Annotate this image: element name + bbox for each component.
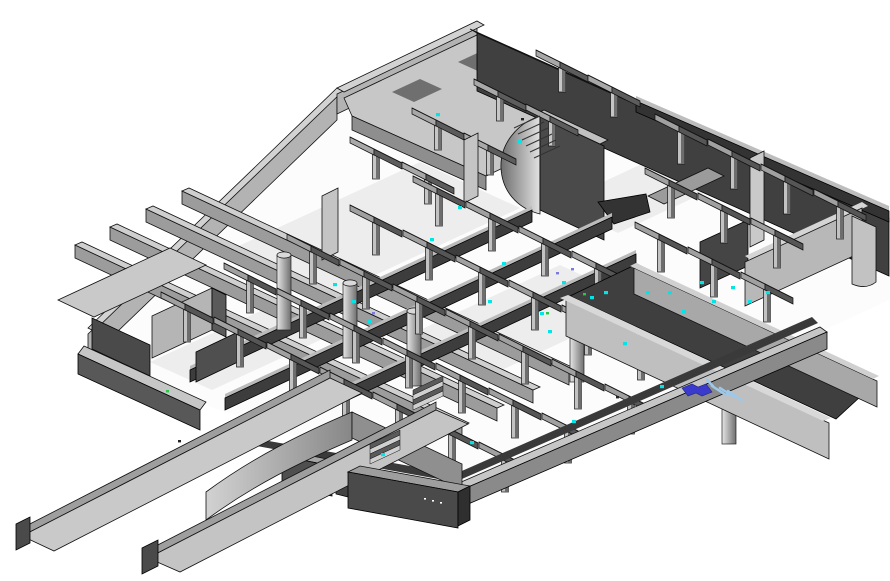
main-column-grid-col-1-6-shaft-shade — [671, 184, 675, 218]
cyan-markers-22 — [660, 385, 664, 388]
pit-weep-holes-2 — [440, 502, 442, 504]
main-column-grid-col-0-0-shaft-shade — [240, 333, 244, 367]
main-column-grid-col-3-5-shaft-shade — [714, 263, 718, 297]
main-column-grid-col-2-3-shaft-shade — [535, 296, 539, 330]
main-column-grid-col-2-1-shaft-shade — [409, 354, 413, 388]
main-column-grid-col-1-7-shaft-shade — [734, 155, 738, 189]
main-column-grid-col-3-6-shaft-shade — [777, 234, 781, 268]
main-column-grid-col-0-1-shaft-shade — [303, 304, 307, 338]
main-column-grid-col-1-2-shaft-shade — [419, 300, 423, 334]
cyan-markers-24 — [470, 441, 474, 444]
main-column-grid-col-0-4-shaft-shade — [492, 217, 496, 251]
cyan-markers-5 — [458, 206, 462, 209]
dark-specks-0 — [616, 396, 619, 398]
cyan-markers-2 — [368, 320, 372, 323]
left-column-row-col-0-0-shaft-shade — [187, 308, 191, 342]
cyan-markers-14 — [646, 291, 650, 294]
left-column-row-col-0-4-shaft-shade — [439, 192, 443, 226]
dark-specks-2 — [521, 118, 524, 120]
dark-specks-1 — [178, 440, 181, 442]
cyan-markers-23 — [572, 420, 576, 423]
left-column-row-col-0-3-shaft-shade — [376, 221, 380, 255]
cyan-markers-17 — [700, 281, 704, 284]
ramp-lane-2-tip-wall — [142, 540, 158, 574]
main-column-grid-col-4-2-shaft-shade — [578, 375, 582, 409]
main-column-grid-col-3-7-shaft-shade — [840, 205, 844, 239]
cyan-markers-11 — [590, 296, 594, 299]
cyan-markers-1 — [352, 300, 356, 303]
violet-markers-2 — [372, 312, 375, 314]
cyan-markers-4 — [430, 238, 434, 241]
cyan-markers-15 — [668, 291, 672, 294]
left-column-row-col-0-2-shaft-shade — [313, 250, 317, 284]
vertical-panel-2 — [464, 133, 478, 203]
pit-weep-holes-0 — [424, 498, 426, 500]
cyan-markers-16 — [682, 310, 686, 313]
cyan-markers-18 — [712, 300, 716, 303]
main-column-grid-col-1-1-shaft-shade — [356, 329, 360, 363]
cyan-markers-13 — [623, 342, 627, 345]
left-column-row-col-0-1-shaft-shade — [250, 279, 254, 313]
green-markers-0 — [166, 390, 169, 392]
cyan-markers-25 — [436, 113, 440, 116]
main-column-grid-col-0-2-shaft-shade — [366, 275, 370, 309]
main-column-grid-col-1-4-shaft-shade — [545, 242, 549, 276]
cyan-markers-7 — [502, 262, 506, 265]
cyan-markers-8 — [540, 312, 544, 315]
green-markers-1 — [546, 312, 549, 314]
round-column-top-1 — [343, 280, 357, 286]
main-column-grid-col-2-5-shaft-shade — [661, 238, 665, 272]
revit-3d-view-canvas[interactable] — [0, 0, 890, 581]
west-box-side — [212, 288, 226, 337]
main-column-grid-col-2-6-shaft-shade — [724, 209, 728, 243]
main-column-grid-col-2-7-shaft-shade — [787, 180, 791, 214]
cyan-markers-20 — [748, 300, 752, 303]
cyan-markers-10 — [562, 281, 566, 284]
cyan-markers-26 — [518, 140, 522, 143]
model-viewport — [0, 0, 890, 581]
cyan-markers-0 — [333, 283, 337, 286]
violet-markers-0 — [556, 272, 559, 274]
cyan-markers-6 — [488, 300, 492, 303]
cyan-markers-21 — [766, 291, 770, 294]
right-room-rounded-panel — [852, 216, 876, 287]
main-column-grid-col-1-0-shaft-shade — [293, 358, 297, 392]
cyan-markers-9 — [548, 330, 552, 333]
green-markers-2 — [583, 293, 586, 295]
cyan-markers-12 — [604, 291, 608, 294]
violet-markers-1 — [571, 268, 574, 270]
main-column-grid-col-1-3-shaft-shade — [482, 271, 486, 305]
ramp-lane-1-tip-wall — [16, 517, 30, 550]
main-column-grid-col-0-7-shaft-shade — [681, 130, 685, 164]
main-column-grid-col-3-2-shaft-shade — [525, 350, 529, 384]
main-column-grid-col-2-2-shaft-shade — [472, 325, 476, 359]
main-column-grid-col-4-1-shaft-shade — [515, 404, 519, 438]
round-column-top-0 — [277, 252, 291, 258]
cyan-markers-19 — [731, 286, 735, 289]
pit-weep-holes-1 — [432, 500, 434, 502]
cyan-markers-3 — [381, 453, 385, 456]
main-column-grid-col-0-3-shaft-shade — [429, 246, 433, 280]
sump-pit-side — [458, 486, 470, 526]
main-column-grid-col-3-1-shaft-shade — [462, 379, 466, 413]
vertical-panel-1 — [322, 188, 338, 260]
